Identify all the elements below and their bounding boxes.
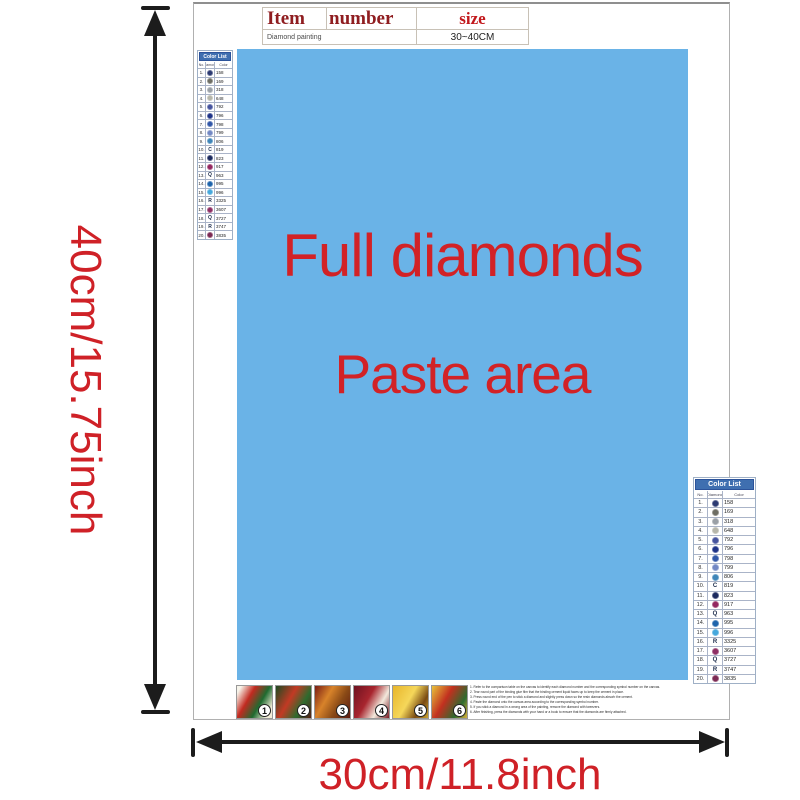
color-list-left: Color List No. Diamond Color 1. 158 xyxy=(197,50,233,240)
row-symbol xyxy=(708,518,723,526)
diamond-dot-icon xyxy=(207,113,213,119)
step-thumbnail: 2 xyxy=(275,685,312,719)
color-list-row: 14. 995 xyxy=(694,619,755,628)
diamond-dot-icon xyxy=(207,155,213,161)
paste-area-subtitle: Paste area xyxy=(334,342,590,406)
row-symbol: C xyxy=(206,146,215,154)
row-number: 18. xyxy=(694,656,708,664)
col-color: Color xyxy=(215,62,232,68)
color-list-row: 1. 158 xyxy=(198,69,232,78)
row-color-code: 806 xyxy=(215,137,232,145)
row-color-code: 158 xyxy=(723,499,755,507)
diamond-dot-icon xyxy=(712,509,719,516)
color-list-row: 18. Q 3727 xyxy=(198,214,232,223)
row-color-code: 3607 xyxy=(215,206,232,214)
step-number-badge: 5 xyxy=(414,704,427,717)
table-header-size: size xyxy=(417,8,528,29)
diamond-dot-icon xyxy=(712,620,719,627)
row-color-code: 799 xyxy=(215,129,232,137)
diamond-dot-icon xyxy=(207,78,213,84)
color-list-body: 1. 158 2. 169 xyxy=(198,69,232,239)
row-symbol xyxy=(708,619,723,627)
color-list-row: 9. 806 xyxy=(198,137,232,146)
row-number: 12. xyxy=(198,163,206,171)
diamond-dot-icon xyxy=(712,629,719,636)
row-number: 5. xyxy=(694,536,708,544)
row-symbol: C xyxy=(708,582,723,590)
color-list-row: 3. 318 xyxy=(694,518,755,527)
diamond-dot-icon xyxy=(712,648,719,655)
vertical-arrow-bottom-cap xyxy=(141,710,170,714)
row-number: 4. xyxy=(198,95,206,103)
color-list-row: 5. 792 xyxy=(694,536,755,545)
diamond-dot-icon xyxy=(712,555,719,562)
row-symbol xyxy=(206,163,215,171)
row-color-code: 995 xyxy=(723,619,755,627)
diamond-dot-icon xyxy=(712,564,719,571)
row-color-code: 169 xyxy=(215,78,232,86)
paste-area-title: Full diamonds xyxy=(282,221,643,290)
row-symbol xyxy=(708,555,723,563)
diamond-dot-icon xyxy=(207,121,213,127)
row-number: 2. xyxy=(198,78,206,86)
row-symbol xyxy=(708,675,723,683)
row-color-code: 318 xyxy=(723,518,755,526)
color-list-row: 6. 796 xyxy=(198,112,232,121)
step-number-badge: 1 xyxy=(258,704,271,717)
row-color-code: 792 xyxy=(723,536,755,544)
step-thumbnail: 6 xyxy=(431,685,468,719)
row-symbol: R xyxy=(708,666,723,674)
color-list-columns: No. Diamond Color xyxy=(694,491,755,499)
row-number: 6. xyxy=(694,545,708,553)
row-symbol xyxy=(708,564,723,572)
col-diamond: Diamond xyxy=(708,491,723,498)
row-number: 17. xyxy=(198,206,206,214)
row-number: 9. xyxy=(694,573,708,581)
row-color-code: 3747 xyxy=(215,223,232,231)
row-color-code: 823 xyxy=(215,154,232,162)
color-list-row: 11. 823 xyxy=(694,592,755,601)
row-color-code: 963 xyxy=(215,172,232,180)
row-symbol xyxy=(708,592,723,600)
color-list-row: 13. Q 963 xyxy=(694,610,755,619)
diamond-dot-icon xyxy=(712,518,719,525)
color-list-columns: No. Diamond Color xyxy=(198,62,232,69)
diamond-dot-icon xyxy=(712,546,719,553)
paste-area: Full diamonds Paste area xyxy=(237,49,688,680)
diamond-dot-icon xyxy=(207,95,213,101)
diamond-dot-icon xyxy=(207,207,213,213)
table-header-row: Item number size xyxy=(263,8,528,30)
horizontal-arrow-right-head xyxy=(699,731,725,753)
row-number: 12. xyxy=(694,601,708,609)
row-number: 10. xyxy=(694,582,708,590)
row-number: 11. xyxy=(694,592,708,600)
color-list-row: 5. 792 xyxy=(198,103,232,112)
diamond-dot-icon xyxy=(712,592,719,599)
row-number: 3. xyxy=(694,518,708,526)
row-symbol: R xyxy=(206,223,215,231)
step-thumbnail: 4 xyxy=(353,685,390,719)
row-color-code: 3607 xyxy=(723,647,755,655)
row-symbol xyxy=(708,647,723,655)
table-value-row: Diamond painting 30~40CM xyxy=(263,30,528,44)
item-size-table: Item number size Diamond painting 30~40C… xyxy=(262,7,529,45)
table-header-item: Item xyxy=(263,8,327,29)
row-number: 6. xyxy=(198,112,206,120)
step-thumbnail: 3 xyxy=(314,685,351,719)
row-color-code: 3727 xyxy=(215,214,232,222)
row-symbol xyxy=(206,206,215,214)
step-number-badge: 6 xyxy=(453,704,466,717)
row-color-code: 3325 xyxy=(723,638,755,646)
row-color-code: 792 xyxy=(215,103,232,111)
table-header-number: number xyxy=(327,8,417,29)
color-list-row: 16. R 3325 xyxy=(198,197,232,206)
row-symbol: R xyxy=(206,197,215,205)
step-thumbnail: 1 xyxy=(236,685,273,719)
diamond-dot-icon xyxy=(712,601,719,608)
color-list-row: 15. 996 xyxy=(694,629,755,638)
diamond-dot-icon xyxy=(207,164,213,170)
step-number-badge: 4 xyxy=(375,704,388,717)
row-color-code: 3727 xyxy=(723,656,755,664)
color-list-title: Color List xyxy=(695,479,754,490)
diamond-dot-icon xyxy=(712,675,719,682)
row-symbol: Q xyxy=(206,214,215,222)
color-list-row: 7. 798 xyxy=(694,555,755,564)
row-color-code: 3835 xyxy=(723,675,755,683)
row-color-code: 799 xyxy=(723,564,755,572)
row-symbol: Q xyxy=(206,172,215,180)
row-color-code: 3325 xyxy=(215,197,232,205)
row-number: 5. xyxy=(198,103,206,111)
row-symbol xyxy=(206,95,215,103)
row-number: 19. xyxy=(694,666,708,674)
row-color-code: 3835 xyxy=(215,231,232,239)
diamond-dot-icon xyxy=(712,537,719,544)
color-list-row: 3. 318 xyxy=(198,86,232,95)
row-color-code: 798 xyxy=(215,120,232,128)
diamond-dot-icon xyxy=(207,189,213,195)
color-list-row: 15. 996 xyxy=(198,189,232,198)
row-symbol xyxy=(206,137,215,145)
color-list-row: 8. 799 xyxy=(694,564,755,573)
row-color-code: 996 xyxy=(215,189,232,197)
row-number: 10. xyxy=(198,146,206,154)
color-list-row: 2. 169 xyxy=(694,508,755,517)
row-number: 2. xyxy=(694,508,708,516)
row-color-code: 169 xyxy=(723,508,755,516)
row-number: 1. xyxy=(694,499,708,507)
row-number: 19. xyxy=(198,223,206,231)
product-infographic: 40cm/15.75inch 30cm/11.8inch Item number… xyxy=(0,0,800,800)
row-symbol xyxy=(206,112,215,120)
row-number: 14. xyxy=(198,180,206,188)
row-color-code: 917 xyxy=(723,601,755,609)
row-number: 3. xyxy=(198,86,206,94)
row-number: 16. xyxy=(198,197,206,205)
color-list-row: 6. 796 xyxy=(694,545,755,554)
diamond-dot-icon xyxy=(207,70,213,76)
color-list-row: 12. 917 xyxy=(198,163,232,172)
color-list-row: 16. R 3325 xyxy=(694,638,755,647)
table-value-item: Diamond painting xyxy=(263,30,417,44)
row-color-code: 648 xyxy=(723,527,755,535)
row-number: 7. xyxy=(198,120,206,128)
row-symbol xyxy=(708,545,723,553)
row-number: 13. xyxy=(198,172,206,180)
row-color-code: 823 xyxy=(723,592,755,600)
row-number: 14. xyxy=(694,619,708,627)
row-color-code: 819 xyxy=(723,582,755,590)
row-number: 20. xyxy=(198,231,206,239)
diamond-dot-icon xyxy=(207,130,213,136)
color-list-row: 13. Q 963 xyxy=(198,172,232,181)
diamond-dot-icon xyxy=(712,574,719,581)
diamond-dot-icon xyxy=(207,181,213,187)
canvas-sheet: Item number size Diamond painting 30~40C… xyxy=(193,2,730,720)
row-number: 9. xyxy=(198,137,206,145)
instructions-text: 1. Refer to the comparison table on the … xyxy=(470,685,714,718)
color-list-right: Color List No. Diamond Color 1. 158 xyxy=(693,477,756,684)
step-thumbnails: 1 2 3 4 5 6 xyxy=(236,685,468,719)
row-symbol: Q xyxy=(708,610,723,618)
row-symbol xyxy=(206,103,215,111)
row-color-code: 796 xyxy=(215,112,232,120)
row-number: 13. xyxy=(694,610,708,618)
row-symbol xyxy=(206,69,215,77)
symbol-letter: C xyxy=(208,147,212,153)
color-list-row: 8. 799 xyxy=(198,129,232,138)
horizontal-arrow-line xyxy=(210,740,712,744)
row-symbol: R xyxy=(708,638,723,646)
row-number: 11. xyxy=(198,154,206,162)
color-list-row: 1. 158 xyxy=(694,499,755,508)
row-symbol xyxy=(206,180,215,188)
color-list-row: 10. C 819 xyxy=(694,582,755,591)
row-number: 16. xyxy=(694,638,708,646)
symbol-letter: Q xyxy=(208,172,212,178)
symbol-letter: Q xyxy=(208,215,212,221)
diamond-dot-icon xyxy=(207,232,213,238)
row-symbol xyxy=(708,508,723,516)
step-number-badge: 2 xyxy=(297,704,310,717)
col-diamond: Diamond xyxy=(206,62,215,68)
row-color-code: 819 xyxy=(215,146,232,154)
color-list-row: 19. R 3747 xyxy=(694,666,755,675)
table-value-size: 30~40CM xyxy=(417,30,528,44)
row-color-code: 806 xyxy=(723,573,755,581)
color-list-row: 14. 995 xyxy=(198,180,232,189)
row-number: 8. xyxy=(694,564,708,572)
symbol-letter: R xyxy=(208,198,212,204)
row-color-code: 318 xyxy=(215,86,232,94)
row-symbol xyxy=(708,601,723,609)
diamond-dot-icon xyxy=(712,500,719,507)
instruction-line: 6. After finishing, press the diamonds w… xyxy=(470,710,714,715)
color-list-title: Color List xyxy=(199,52,231,61)
color-list-row: 19. R 3747 xyxy=(198,223,232,232)
row-number: 15. xyxy=(198,189,206,197)
symbol-letter: R xyxy=(713,667,717,673)
color-list-row: 18. Q 3727 xyxy=(694,656,755,665)
color-list-row: 4. 648 xyxy=(198,95,232,104)
step-number-badge: 3 xyxy=(336,704,349,717)
diamond-dot-icon xyxy=(207,87,213,93)
color-list-row: 2. 169 xyxy=(198,78,232,87)
row-number: 7. xyxy=(694,555,708,563)
height-dimension-label: 40cm/15.75inch xyxy=(60,225,110,536)
row-symbol xyxy=(206,120,215,128)
row-color-code: 995 xyxy=(215,180,232,188)
color-list-row: 10. C 819 xyxy=(198,146,232,155)
row-number: 4. xyxy=(694,527,708,535)
row-color-code: 648 xyxy=(215,95,232,103)
vertical-arrow-down-head xyxy=(144,684,166,710)
color-list-row: 11. 823 xyxy=(198,154,232,163)
horizontal-arrow-right-cap xyxy=(725,728,729,757)
col-color: Color xyxy=(723,491,755,498)
symbol-letter: R xyxy=(713,639,717,645)
row-number: 15. xyxy=(694,629,708,637)
row-number: 8. xyxy=(198,129,206,137)
row-number: 17. xyxy=(694,647,708,655)
step-thumbnail: 5 xyxy=(392,685,429,719)
row-symbol xyxy=(708,573,723,581)
diamond-dot-icon xyxy=(712,527,719,534)
row-color-code: 917 xyxy=(215,163,232,171)
row-color-code: 3747 xyxy=(723,666,755,674)
vertical-arrow-line xyxy=(153,28,157,690)
row-symbol xyxy=(708,499,723,507)
width-dimension-label: 30cm/11.8inch xyxy=(319,750,602,800)
row-symbol xyxy=(206,231,215,239)
row-symbol xyxy=(206,189,215,197)
row-number: 20. xyxy=(694,675,708,683)
row-symbol: Q xyxy=(708,656,723,664)
color-list-row: 17. 3607 xyxy=(198,206,232,215)
color-list-row: 4. 648 xyxy=(694,527,755,536)
color-list-row: 7. 798 xyxy=(198,120,232,129)
row-color-code: 796 xyxy=(723,545,755,553)
col-no: No. xyxy=(694,491,708,498)
symbol-letter: Q xyxy=(713,657,718,663)
row-number: 18. xyxy=(198,214,206,222)
row-symbol xyxy=(206,154,215,162)
horizontal-arrow-left-cap xyxy=(191,728,195,757)
color-list-row: 12. 917 xyxy=(694,601,755,610)
diamond-dot-icon xyxy=(207,104,213,110)
symbol-letter: Q xyxy=(713,611,718,617)
symbol-letter: R xyxy=(208,224,212,230)
row-symbol xyxy=(708,536,723,544)
symbol-letter: C xyxy=(713,583,717,589)
color-list-row: 9. 806 xyxy=(694,573,755,582)
color-list-row: 20. 3835 xyxy=(694,675,755,683)
color-list-row: 17. 3607 xyxy=(694,647,755,656)
col-no: No. xyxy=(198,62,206,68)
row-symbol xyxy=(708,527,723,535)
color-list-body: 1. 158 2. 169 xyxy=(694,499,755,683)
row-color-code: 798 xyxy=(723,555,755,563)
row-number: 1. xyxy=(198,69,206,77)
row-symbol xyxy=(206,86,215,94)
row-symbol xyxy=(708,629,723,637)
row-symbol xyxy=(206,78,215,86)
row-color-code: 158 xyxy=(215,69,232,77)
diamond-dot-icon xyxy=(207,138,213,144)
row-color-code: 996 xyxy=(723,629,755,637)
row-symbol xyxy=(206,129,215,137)
row-color-code: 963 xyxy=(723,610,755,618)
color-list-row: 20. 3835 xyxy=(198,231,232,239)
